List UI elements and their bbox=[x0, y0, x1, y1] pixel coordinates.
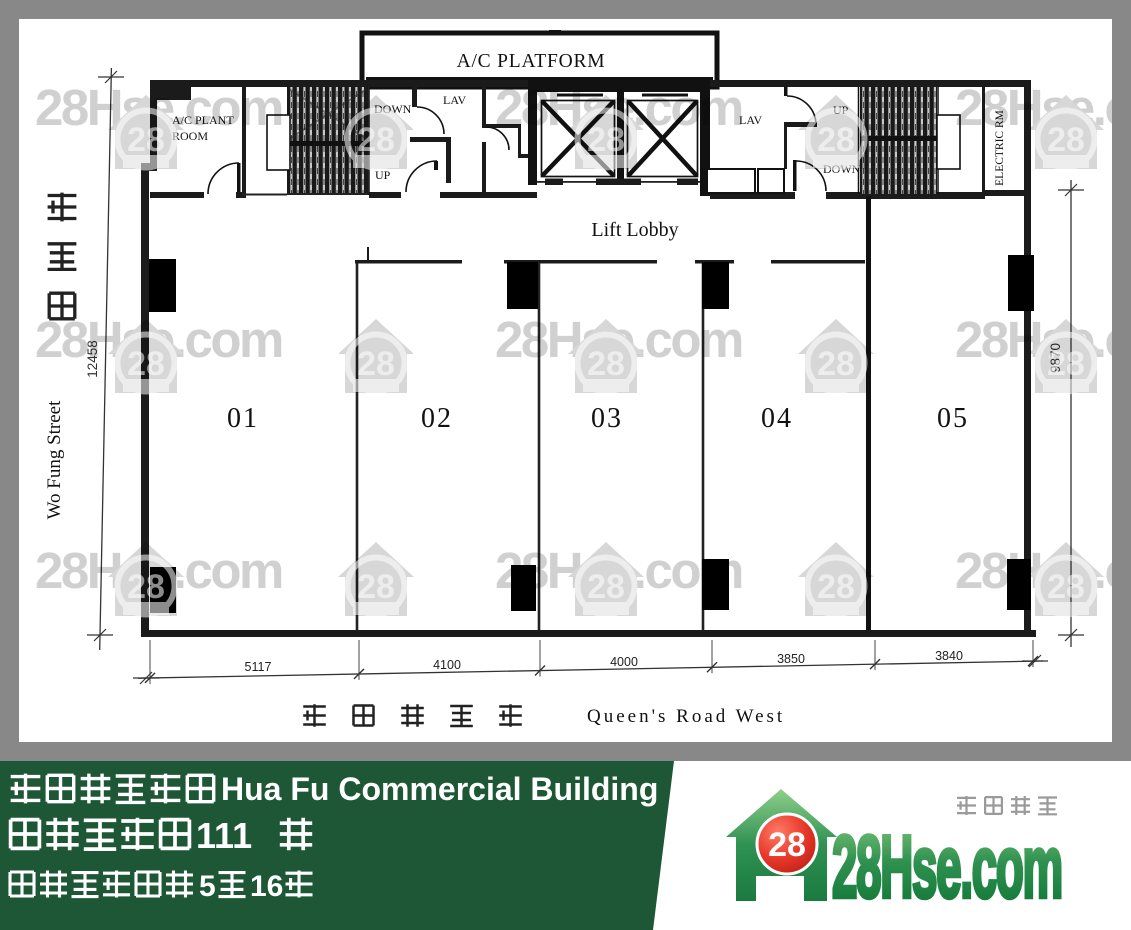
svg-text:4100: 4100 bbox=[433, 658, 461, 672]
svg-text:28: 28 bbox=[587, 121, 625, 159]
svg-text:28: 28 bbox=[127, 345, 165, 383]
svg-text:5117: 5117 bbox=[245, 660, 272, 674]
svg-text:111: 111 bbox=[196, 815, 252, 856]
svg-text:Hua Fu Commercial Building: Hua Fu Commercial Building bbox=[221, 771, 658, 807]
svg-text:Queen's Road West: Queen's Road West bbox=[587, 706, 785, 727]
svg-text:28: 28 bbox=[817, 568, 855, 606]
svg-text:28: 28 bbox=[357, 121, 395, 159]
svg-text:28: 28 bbox=[817, 121, 855, 159]
svg-text:3850: 3850 bbox=[777, 652, 805, 666]
svg-text:16: 16 bbox=[250, 870, 283, 903]
svg-text:LAV: LAV bbox=[739, 113, 762, 127]
svg-text:LAV: LAV bbox=[443, 93, 466, 107]
svg-text:28: 28 bbox=[1047, 345, 1085, 383]
svg-text:Wo Fung Street: Wo Fung Street bbox=[44, 400, 65, 520]
svg-text:03: 03 bbox=[591, 403, 623, 434]
svg-text:3840: 3840 bbox=[935, 649, 963, 663]
svg-text:Lift Lobby: Lift Lobby bbox=[591, 219, 678, 241]
svg-text:28: 28 bbox=[357, 345, 395, 383]
svg-text:28: 28 bbox=[127, 121, 165, 159]
svg-text:01: 01 bbox=[227, 403, 259, 434]
svg-text:28Hse.com: 28Hse.com bbox=[832, 818, 1062, 916]
svg-text:04: 04 bbox=[761, 403, 793, 434]
svg-text:28: 28 bbox=[1047, 121, 1085, 159]
svg-text:28: 28 bbox=[587, 568, 625, 606]
svg-text:05: 05 bbox=[937, 403, 969, 434]
svg-text:A/C PLATFORM: A/C PLATFORM bbox=[457, 51, 606, 72]
svg-text:28: 28 bbox=[1047, 568, 1085, 606]
svg-text:4000: 4000 bbox=[610, 655, 638, 669]
svg-text:28: 28 bbox=[768, 826, 806, 864]
svg-text:28: 28 bbox=[817, 345, 855, 383]
svg-text:5: 5 bbox=[199, 870, 216, 903]
svg-text:28: 28 bbox=[357, 568, 395, 606]
svg-text:28: 28 bbox=[127, 568, 165, 606]
svg-text:02: 02 bbox=[421, 403, 453, 434]
svg-text:28: 28 bbox=[587, 345, 625, 383]
